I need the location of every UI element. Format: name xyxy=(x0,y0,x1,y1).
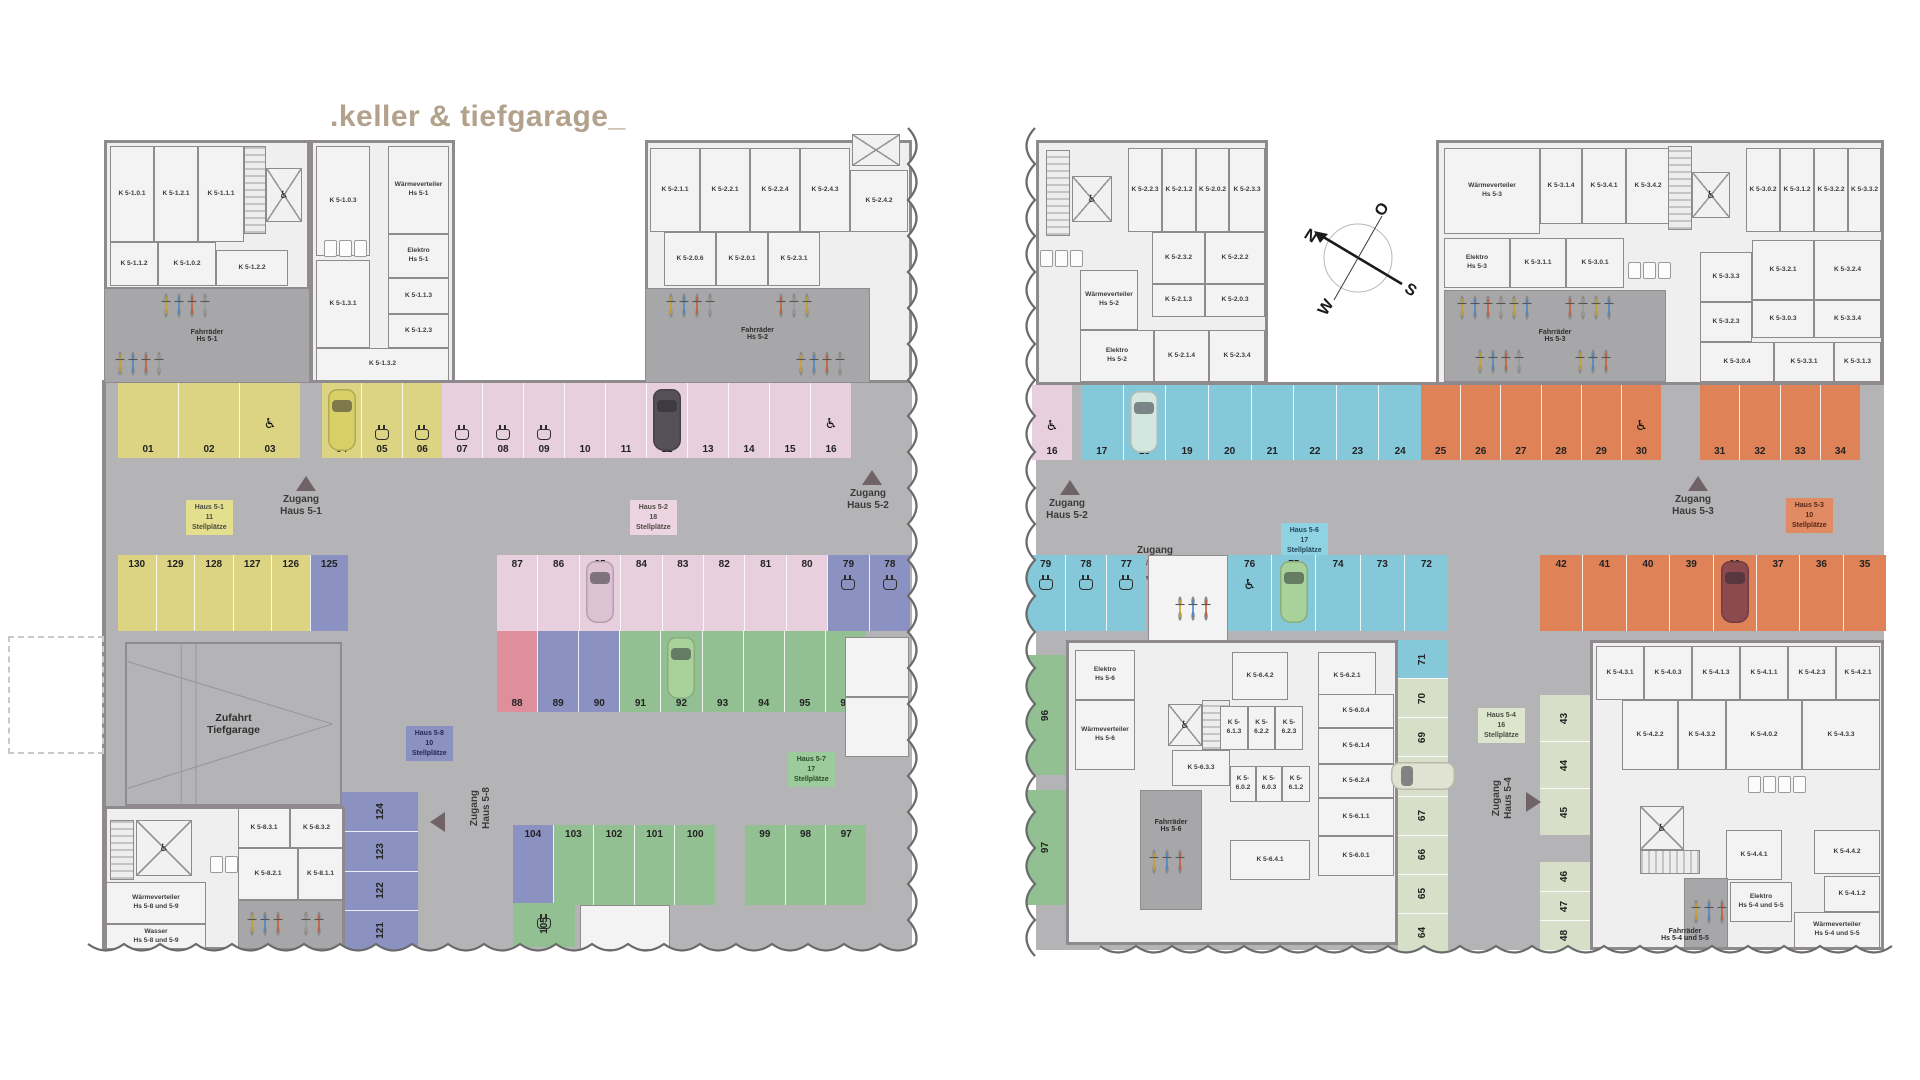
compass-rose: N O S W xyxy=(1298,198,1418,318)
wheelchair-icon: ♿ xyxy=(825,416,838,432)
room: K 5-6.1.3 xyxy=(1220,706,1248,750)
parking-stall-30: 30♿ xyxy=(1621,385,1661,460)
parking-stall-13: 13 xyxy=(687,383,728,458)
parking-stall-128: 128 xyxy=(194,555,233,631)
room: K 5-3.4.2 xyxy=(1626,148,1670,224)
stairs xyxy=(1046,150,1070,236)
stall-number: 93 xyxy=(703,698,743,709)
parking-stall-05: 05 xyxy=(361,383,401,458)
bicycle-icons xyxy=(1565,295,1614,321)
parking-column-121-124: 124123122121 xyxy=(342,792,418,950)
room: K 5-8.1.1 xyxy=(298,848,343,900)
bicycle-icon xyxy=(789,293,799,319)
stall-number: 10 xyxy=(565,444,605,455)
parking-stall-71: 71 xyxy=(1398,640,1448,678)
room: Wärmeverteiler Hs 5-3 xyxy=(1444,148,1540,234)
parking-stall-12: 12 xyxy=(646,383,687,458)
bicycle-icon xyxy=(822,351,832,377)
stall-number: 33 xyxy=(1781,446,1820,457)
bike-room-label: Fahrräder Hs 5-4 und 5-5 xyxy=(1620,928,1750,942)
bicycle-icon xyxy=(1470,295,1480,321)
parking-stall-36: 36 xyxy=(1799,555,1842,631)
parking-stall-121: 121 xyxy=(342,910,418,950)
room: K 5-3.4.1 xyxy=(1582,148,1626,224)
room: K 5-6.0.4 xyxy=(1318,694,1394,728)
parking-stall-10: 10 xyxy=(564,383,605,458)
room: K 5-3.0.3 xyxy=(1752,300,1814,338)
parking-stall-29: 29 xyxy=(1581,385,1621,460)
parking-row-31-34: 31323334 xyxy=(1700,385,1860,460)
bicycle-icon xyxy=(1601,349,1611,375)
bicycle-icon xyxy=(1201,596,1211,622)
parking-stall-34: 34 xyxy=(1820,385,1860,460)
room: K 5-6.0.2 xyxy=(1230,766,1256,802)
room: K 5-4.3.3 xyxy=(1802,700,1880,770)
car-icon xyxy=(1280,561,1308,623)
room: K 5-4.1.3 xyxy=(1692,646,1740,700)
room: K 5-6.4.1 xyxy=(1230,840,1310,880)
stall-number: 125 xyxy=(311,559,349,570)
parking-stall-85: 85 xyxy=(579,555,620,631)
zone-badge-h58: Haus 5-810 Stellplätze xyxy=(406,726,453,761)
parking-stall-06: 06 xyxy=(402,383,442,458)
parking-stall-11: 11 xyxy=(605,383,646,458)
room: K 5-1.2.1 xyxy=(154,146,198,242)
stall-number: 97 xyxy=(1041,842,1052,853)
stall-number: 65 xyxy=(1418,888,1429,899)
corridor-room xyxy=(1148,555,1228,648)
room: K 5-3.1.2 xyxy=(1780,148,1814,232)
room: K 5-2.1.1 xyxy=(650,148,700,232)
access-label-h52: Zugang Haus 5-2 xyxy=(1032,498,1102,522)
room: K 5-3.1.1 xyxy=(1510,238,1566,288)
bike-room-label: Fahrräder Hs 5-2 xyxy=(646,327,869,341)
parking-stall-21: 21 xyxy=(1251,385,1294,460)
parking-stall-70: 70 xyxy=(1398,678,1448,717)
stall-number: 122 xyxy=(375,883,386,900)
stall-number: 22 xyxy=(1294,446,1336,457)
stairs xyxy=(1640,850,1700,874)
elevator: ♿ xyxy=(1640,806,1684,850)
access-arrow xyxy=(1060,480,1080,495)
parking-stall-09: 09 xyxy=(523,383,564,458)
parking-stall-83: 83 xyxy=(662,555,703,631)
room: K 5-2.4.3 xyxy=(800,148,850,232)
room: K 5-6.2.1 xyxy=(1318,652,1376,700)
elevator: ♿ xyxy=(1168,704,1202,746)
access-label-h52: Zugang Haus 5-2 xyxy=(833,488,903,512)
car-icon xyxy=(1721,561,1749,623)
parking-column-46-48: 464748 xyxy=(1540,862,1590,950)
bicycle-icons xyxy=(247,911,283,937)
parking-stall-14: 14 xyxy=(728,383,769,458)
room: K 5-1.3.1 xyxy=(316,260,370,348)
zone-badge-h53: Haus 5-310 Stellplätze xyxy=(1786,498,1833,533)
elevator: ♿ xyxy=(136,820,192,876)
bicycle-icon xyxy=(200,293,210,319)
parking-stall-96: 96 xyxy=(1026,655,1066,775)
stall-number: 78 xyxy=(870,559,910,570)
bicycle-icon xyxy=(128,351,138,377)
bicycle-icon xyxy=(141,351,151,377)
stall-number: 14 xyxy=(729,444,769,455)
parking-stall-95: 95 xyxy=(784,631,825,712)
parking-stall-89: 89 xyxy=(537,631,578,712)
stall-number: 83 xyxy=(663,559,703,570)
bicycle-icon xyxy=(1475,349,1485,375)
car-icon xyxy=(586,561,614,623)
parking-stall-75: 75 xyxy=(1271,555,1315,631)
stall-number: 06 xyxy=(403,444,442,455)
parking-stall-33: 33 xyxy=(1780,385,1820,460)
room: K 5-1.2.2 xyxy=(216,250,288,286)
bicycle-icon xyxy=(802,293,812,319)
room: K 5-2.0.2 xyxy=(1196,148,1229,232)
parking-row-25-30: 252627282930♿ xyxy=(1421,385,1661,460)
wheelchair-icon: ♿ xyxy=(1658,823,1667,834)
parking-stall-66: 66 xyxy=(1398,835,1448,874)
stall-number: 28 xyxy=(1542,446,1581,457)
parking-row-104-100: 104103102101100 xyxy=(513,825,715,905)
parking-stall-47: 47 xyxy=(1540,891,1590,921)
stall-number: 07 xyxy=(442,444,482,455)
access-arrow xyxy=(296,476,316,491)
stall-number: 41 xyxy=(1583,559,1625,570)
stall-number: 21 xyxy=(1252,446,1294,457)
bicycle-icon xyxy=(1488,349,1498,375)
stall-number: 127 xyxy=(234,559,272,570)
bicycle-icon xyxy=(1604,295,1614,321)
bicycle-icons xyxy=(1175,596,1211,622)
stall-number: 05 xyxy=(362,444,401,455)
car-icon xyxy=(1391,762,1455,790)
bicycle-icon xyxy=(1565,295,1575,321)
stall-number: 99 xyxy=(745,829,785,840)
stall-number: 08 xyxy=(483,444,523,455)
ev-charging-icon xyxy=(415,429,429,440)
storage-boxes xyxy=(210,856,238,873)
parking-stall-17: 17 xyxy=(1081,385,1123,460)
bicycle-icon xyxy=(1578,295,1588,321)
parking-stall-80: 80 xyxy=(786,555,827,631)
parking-stall-27: 27 xyxy=(1500,385,1540,460)
room: K 5-3.1.4 xyxy=(1540,148,1582,224)
room: K 5-3.3.4 xyxy=(1814,300,1881,338)
parking-stall-41: 41 xyxy=(1582,555,1625,631)
ev-charging-icon xyxy=(1079,579,1093,590)
room: Elektro Hs 5-2 xyxy=(1080,330,1154,382)
room: K 5-4.2.1 xyxy=(1836,646,1880,700)
bicycle-icon xyxy=(247,911,257,937)
stall-number: 77 xyxy=(1107,559,1146,570)
compass-s: S xyxy=(1401,280,1418,300)
stairs xyxy=(244,146,266,234)
stall-number: 95 xyxy=(785,698,825,709)
car-icon xyxy=(667,637,695,699)
parking-stall-26: 26 xyxy=(1460,385,1500,460)
room: Wärmeverteiler Hs 5-1 xyxy=(388,146,449,234)
room: Elektro Hs 5-1 xyxy=(388,234,449,278)
access-arrow xyxy=(1688,476,1708,491)
parking-stall-126: 126 xyxy=(271,555,310,631)
room: K 5-3.2.2 xyxy=(1814,148,1848,232)
parking-stall-67: 67 xyxy=(1398,796,1448,835)
room xyxy=(845,637,909,697)
room: K 5-6.1.1 xyxy=(1318,798,1394,836)
bicycle-icon xyxy=(1704,899,1714,925)
zone-badge-h57: Haus 5-717 Stellplätze xyxy=(788,752,835,787)
stall-number: 84 xyxy=(621,559,661,570)
car-icon xyxy=(1130,391,1158,453)
parking-stall-99: 99 xyxy=(745,825,785,905)
parking-stall-77: 77 xyxy=(1106,555,1146,631)
bicycle-icons xyxy=(1475,349,1524,375)
parking-stall-122: 122 xyxy=(342,871,418,911)
stall-number: 90 xyxy=(579,698,619,709)
parking-stall-32: 32 xyxy=(1739,385,1779,460)
room: K 5-4.1.2 xyxy=(1824,876,1880,912)
parking-row-79-77: 797877 xyxy=(1026,555,1146,631)
compass-o: O xyxy=(1372,200,1393,220)
parking-stall-104: 104 xyxy=(513,825,553,905)
zone-badge-h54: Haus 5-416 Stellplätze xyxy=(1478,708,1525,743)
room: K 5-1.1.1 xyxy=(198,146,244,242)
bicycle-icon xyxy=(1717,899,1727,925)
stall-number: 101 xyxy=(635,829,675,840)
stall-number: 17 xyxy=(1081,446,1123,457)
room: K 5-6.1.4 xyxy=(1318,728,1394,764)
bicycle-icons xyxy=(666,293,715,319)
bicycle-icon xyxy=(796,351,806,377)
stall-number: 78 xyxy=(1066,559,1105,570)
access-arrow xyxy=(430,812,445,832)
room: Elektro Hs 5-4 und 5-5 xyxy=(1730,882,1792,922)
bicycle-icon xyxy=(705,293,715,319)
access-label-h51: Zugang Haus 5-1 xyxy=(266,494,336,518)
stall-number: 87 xyxy=(497,559,537,570)
room: K 5-6.1.2 xyxy=(1282,766,1310,802)
room: K 5-2.4.2 xyxy=(850,170,908,232)
stall-number: 79 xyxy=(828,559,868,570)
room: K 5-3.0.2 xyxy=(1746,148,1780,232)
stall-number: 97 xyxy=(826,829,866,840)
parking-stall-127: 127 xyxy=(233,555,272,631)
zone-badge-h51: Haus 5-111 Stellplätze xyxy=(186,500,233,535)
parking-stall-20: 20 xyxy=(1208,385,1251,460)
parking-stall-86: 86 xyxy=(537,555,578,631)
bicycle-icon xyxy=(174,293,184,319)
stall-number: 89 xyxy=(538,698,578,709)
parking-stall-103: 103 xyxy=(553,825,594,905)
parking-stall-28: 28 xyxy=(1541,385,1581,460)
stall-number: 66 xyxy=(1418,849,1429,860)
bike-room-label: Fahrräder Hs 5-3 xyxy=(1445,329,1665,343)
bicycle-icon xyxy=(1175,849,1185,875)
stall-number: 129 xyxy=(157,559,195,570)
parking-stall-16: 16♿ xyxy=(1032,385,1072,460)
stall-number: 42 xyxy=(1540,559,1582,570)
bicycle-icon xyxy=(776,293,786,319)
stall-number: 01 xyxy=(118,444,178,455)
stall-number: 82 xyxy=(704,559,744,570)
bicycle-icon xyxy=(1522,295,1532,321)
parking-stall-42: 42 xyxy=(1540,555,1582,631)
stall-number: 31 xyxy=(1700,446,1739,457)
stall-number: 96 xyxy=(1041,709,1052,720)
parking-stall-90: 90 xyxy=(578,631,619,712)
room: K 5-6.2.3 xyxy=(1275,706,1303,750)
bicycle-icon xyxy=(1483,295,1493,321)
parking-stall-123: 123 xyxy=(342,831,418,871)
stall-number: 30 xyxy=(1622,446,1661,457)
parking-stall-130: 130 xyxy=(118,555,156,631)
room: K 5-6.0.1 xyxy=(1318,836,1394,876)
stairs xyxy=(110,820,134,880)
storage-boxes xyxy=(1748,776,1806,793)
storage-boxes xyxy=(1040,250,1083,267)
parking-stall-97: 97 xyxy=(1026,790,1066,905)
stall-number: 79 xyxy=(1026,559,1065,570)
bicycle-icon xyxy=(1588,349,1598,375)
stall-number: 11 xyxy=(606,444,646,455)
bike-room-h52: Fahrräder Hs 5-2 xyxy=(645,288,870,383)
room: K 5-4.3.1 xyxy=(1596,646,1644,700)
room: Elektro Hs 5-3 xyxy=(1444,238,1510,288)
stall-number: 15 xyxy=(770,444,810,455)
room: K 5-1.3.2 xyxy=(316,348,449,381)
elevator: ♿ xyxy=(1072,176,1112,222)
stall-number: 35 xyxy=(1844,559,1886,570)
room: K 5-3.2.3 xyxy=(1700,302,1752,342)
parking-stall-124: 124 xyxy=(342,792,418,831)
stall-number: 27 xyxy=(1501,446,1540,457)
stall-number: 76 xyxy=(1228,559,1271,570)
parking-row-87-78: 87868584838281807978 xyxy=(497,555,910,631)
room: K 5-2.1.2 xyxy=(1162,148,1196,232)
bicycle-icon xyxy=(1175,596,1185,622)
stall-number: 37 xyxy=(1757,559,1799,570)
access-arrow xyxy=(1526,792,1541,812)
parking-stall-01: 01 xyxy=(118,383,178,458)
room: K 5-2.2.3 xyxy=(1128,148,1162,232)
parking-stall-03: 03♿ xyxy=(239,383,300,458)
room: K 5-6.4.2 xyxy=(1232,652,1288,700)
room: K 5-4.0.3 xyxy=(1644,646,1692,700)
room: K 5-2.3.4 xyxy=(1209,330,1265,382)
parking-stall-16: 16♿ xyxy=(1032,385,1072,460)
parking-row-07-16: 07080910111213141516♿ xyxy=(442,383,851,458)
parking-stall-97: 97 xyxy=(825,825,866,905)
parking-stall-38: 38 xyxy=(1713,555,1756,631)
parking-stall-44: 44 xyxy=(1540,741,1590,788)
room: K 5-3.2.1 xyxy=(1752,240,1814,300)
bicycle-icon xyxy=(154,351,164,377)
room: K 5-2.3.1 xyxy=(768,232,820,286)
wheelchair-icon: ♿ xyxy=(1046,418,1059,434)
room: K 5-1.1.3 xyxy=(388,278,449,314)
room: Wärmeverteiler Hs 5-4 und 5-5 xyxy=(1794,912,1880,948)
stall-number: 72 xyxy=(1405,559,1448,570)
bicycle-icon xyxy=(260,911,270,937)
stall-number: 48 xyxy=(1560,930,1571,941)
stall-number: 123 xyxy=(375,843,386,860)
parking-stall-98: 98 xyxy=(785,825,826,905)
car-icon xyxy=(653,389,681,451)
stall-number: 47 xyxy=(1560,900,1571,911)
stall-number: 88 xyxy=(497,698,537,709)
parking-stall-15: 15 xyxy=(769,383,810,458)
access-label-h54: Zugang Haus 5-4 xyxy=(1491,763,1515,833)
bicycle-icons xyxy=(796,351,845,377)
parking-stall-100: 100 xyxy=(674,825,715,905)
room: K 5-8.3.1 xyxy=(238,808,290,848)
ev-charging-icon xyxy=(537,918,551,929)
stall-number: 92 xyxy=(661,698,701,709)
parking-stall-69: 69 xyxy=(1398,717,1448,756)
parking-row-130-125: 130129128127126125 xyxy=(118,555,348,631)
page-title: .keller & tiefgarage_ xyxy=(330,100,626,134)
parking-row-01-03: 010203♿ xyxy=(118,383,300,458)
parking-stall-31: 31 xyxy=(1700,385,1739,460)
room: K 5-8.2.1 xyxy=(238,848,298,900)
stall-number: 64 xyxy=(1418,927,1429,938)
stall-number: 98 xyxy=(786,829,826,840)
room: K 5-6.2.4 xyxy=(1318,764,1394,798)
stall-number: 40 xyxy=(1627,559,1669,570)
bicycle-icon xyxy=(161,293,171,319)
bicycle-icon xyxy=(666,293,676,319)
storage-boxes xyxy=(324,240,367,257)
stall-number: 130 xyxy=(118,559,156,570)
stall-number: 26 xyxy=(1461,446,1500,457)
wheelchair-icon: ♿ xyxy=(1635,418,1648,434)
parking-row-76-72: 76♿75747372 xyxy=(1228,555,1448,631)
zone-badge-h52: Haus 5-218 Stellplätze xyxy=(630,500,677,535)
parking-stall-46: 46 xyxy=(1540,862,1590,891)
room xyxy=(845,697,909,757)
ev-charging-icon xyxy=(375,429,389,440)
room: K 5-3.0.4 xyxy=(1700,342,1774,382)
room: K 5-1.1.2 xyxy=(110,242,158,286)
parking-stall-22: 22 xyxy=(1293,385,1336,460)
parking-stall-76: 76♿ xyxy=(1228,555,1271,631)
stall-number: 44 xyxy=(1560,759,1571,770)
parking-stall-43: 43 xyxy=(1540,695,1590,741)
parking-column-71-64: 7170696867666564 xyxy=(1398,640,1448,952)
bike-room-label: Fahrräder Hs 5-1 xyxy=(105,329,309,343)
bicycle-icon xyxy=(1501,349,1511,375)
parking-column-43-45: 434445 xyxy=(1540,695,1590,835)
stall-number: 128 xyxy=(195,559,233,570)
room: K 5-4.2.2 xyxy=(1622,700,1678,770)
parking-stall-04: 04 xyxy=(322,383,361,458)
parking-stall-88: 88 xyxy=(497,631,537,712)
stall-number: 73 xyxy=(1361,559,1404,570)
bicycle-icon xyxy=(273,911,283,937)
stall-number: 29 xyxy=(1582,446,1621,457)
parking-stall-68: 68 xyxy=(1398,756,1448,795)
ev-charging-icon xyxy=(1119,579,1133,590)
parking-stall-78: 78 xyxy=(869,555,910,631)
elevator: ♿ xyxy=(266,168,302,222)
stall-number: 23 xyxy=(1337,446,1379,457)
stall-number: 103 xyxy=(554,829,594,840)
parking-row-42-35: 4241403938373635 xyxy=(1540,555,1886,631)
room: K 5-2.0.6 xyxy=(664,232,716,286)
bicycle-icon xyxy=(1188,596,1198,622)
bicycle-icon xyxy=(314,911,324,937)
parking-stall-87: 87 xyxy=(497,555,537,631)
